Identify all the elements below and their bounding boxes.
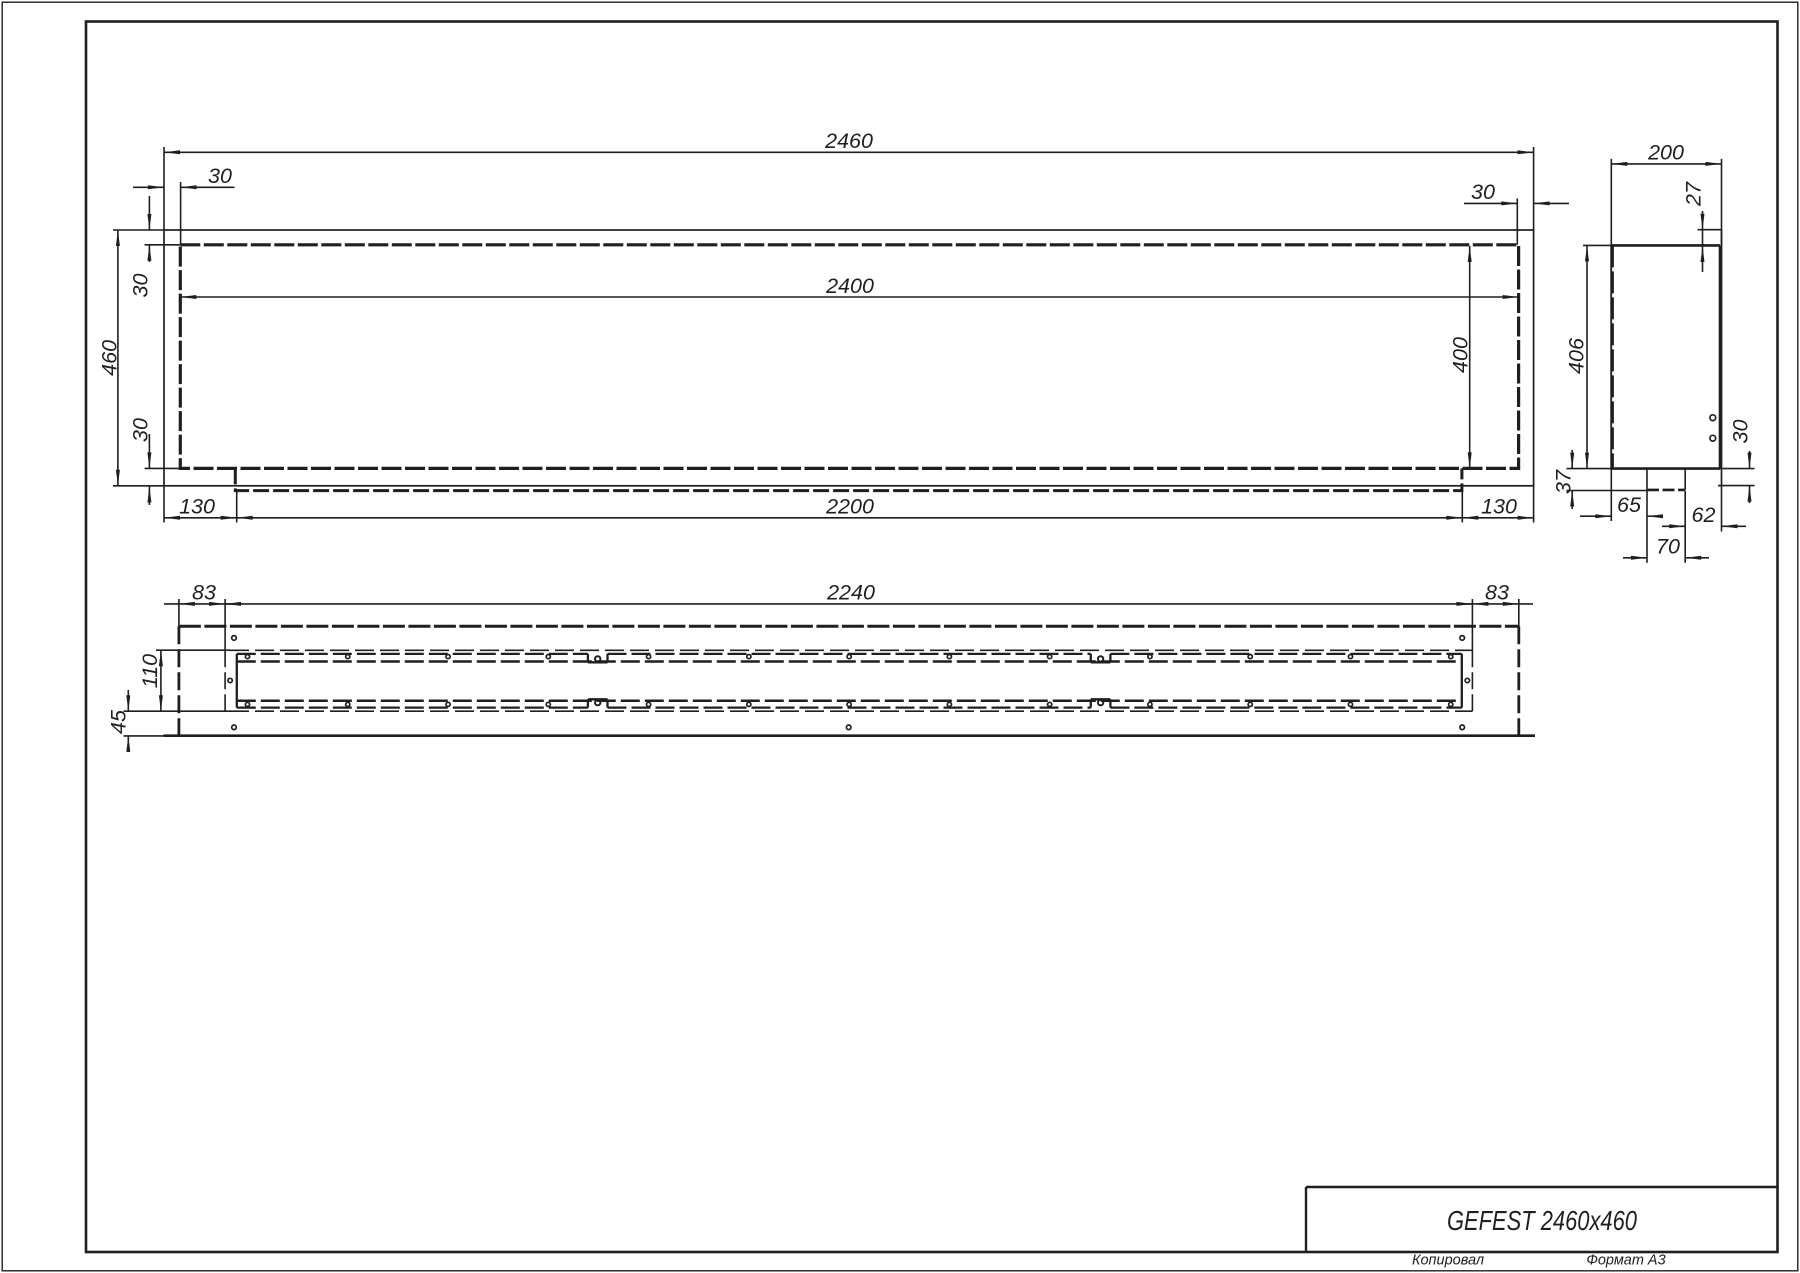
svg-text:83: 83 <box>192 581 216 605</box>
svg-text:62: 62 <box>1692 503 1716 527</box>
svg-text:2200: 2200 <box>825 495 874 519</box>
svg-text:406: 406 <box>1565 338 1589 374</box>
svg-text:65: 65 <box>1617 493 1642 517</box>
svg-text:2240: 2240 <box>826 581 875 605</box>
svg-text:30: 30 <box>129 418 153 442</box>
svg-text:70: 70 <box>1656 535 1680 559</box>
svg-text:200: 200 <box>1647 141 1684 165</box>
svg-text:Копировал: Копировал <box>1412 1253 1484 1269</box>
svg-text:2400: 2400 <box>825 274 874 298</box>
svg-text:30: 30 <box>129 274 153 298</box>
svg-text:30: 30 <box>1729 420 1753 444</box>
svg-text:130: 130 <box>179 495 215 519</box>
svg-text:30: 30 <box>208 164 232 188</box>
svg-text:130: 130 <box>1481 495 1517 519</box>
svg-text:2460: 2460 <box>824 129 873 153</box>
svg-text:Формат А3: Формат А3 <box>1586 1253 1665 1269</box>
svg-text:27: 27 <box>1682 181 1706 207</box>
svg-text:GEFEST 2460x460: GEFEST 2460x460 <box>1447 1205 1637 1236</box>
svg-text:110: 110 <box>138 654 162 688</box>
svg-text:400: 400 <box>1448 337 1472 373</box>
svg-text:30: 30 <box>1471 180 1495 204</box>
svg-text:37: 37 <box>1551 469 1575 494</box>
svg-text:460: 460 <box>97 340 121 376</box>
svg-text:45: 45 <box>107 709 131 734</box>
svg-text:83: 83 <box>1485 581 1509 605</box>
